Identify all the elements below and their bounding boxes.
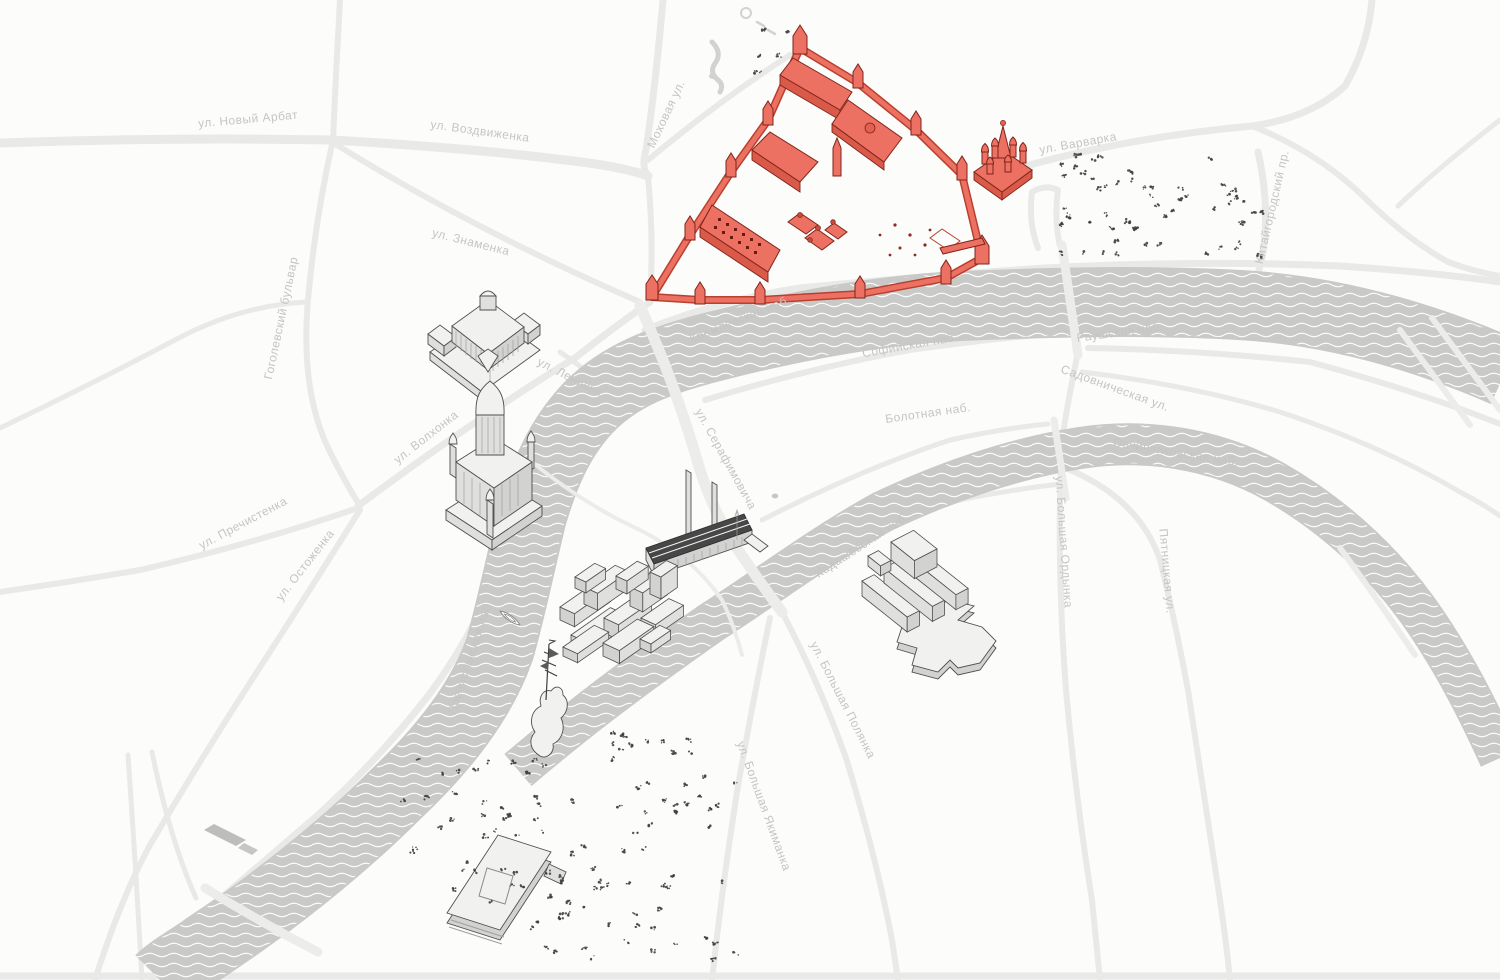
island-dot <box>772 494 778 499</box>
tree-icon <box>1230 191 1231 192</box>
tree-icon <box>482 800 484 802</box>
tree-icon <box>780 56 781 57</box>
tree-icon <box>455 887 457 889</box>
tree-icon <box>628 883 630 885</box>
tree-icon <box>647 741 650 744</box>
xxc-turret-front <box>487 500 493 538</box>
tree-icon <box>1218 249 1219 250</box>
tree-icon <box>1235 190 1238 193</box>
tree-icon <box>483 833 486 836</box>
tree-icon <box>663 885 665 887</box>
tree-icon <box>453 818 454 819</box>
tree-icon <box>611 760 614 763</box>
tree-icon <box>1227 195 1228 196</box>
river-moskva-band <box>160 302 1500 980</box>
tree-icon <box>515 871 518 874</box>
tree-icon <box>452 820 454 822</box>
tree-icon <box>509 815 511 817</box>
tree-icon <box>670 750 672 752</box>
tree-icon <box>1104 212 1106 214</box>
tree-icon <box>776 53 778 55</box>
moskva-river <box>160 302 1500 980</box>
tree-icon <box>712 960 714 962</box>
tree-icon <box>662 799 664 801</box>
tree-icon <box>1073 155 1075 157</box>
tree-icon <box>1156 244 1158 246</box>
tree-icon <box>711 958 713 960</box>
tree-icon <box>603 886 605 888</box>
tree-icon <box>412 849 414 851</box>
road-varvarka-north <box>1252 0 1372 126</box>
tree-icon <box>1137 227 1138 228</box>
tree-icon <box>1116 251 1118 253</box>
tree-icon <box>621 734 623 736</box>
tree-icon <box>489 901 492 904</box>
tree-icon <box>547 897 549 899</box>
tree-icon <box>1234 198 1235 199</box>
tree-icon <box>426 795 429 798</box>
tree-icon <box>558 876 560 878</box>
tree-icon <box>690 752 692 754</box>
tree-icon <box>1117 180 1120 183</box>
tree-icon <box>623 849 625 851</box>
tree-icon <box>622 749 624 751</box>
ges2-chimney-1 <box>686 470 691 543</box>
tree-icon <box>641 848 643 850</box>
tree-icon <box>1237 247 1239 249</box>
kremlin-garden-trees <box>879 223 932 256</box>
tree-icon <box>1152 187 1154 189</box>
tree-icon <box>458 769 461 772</box>
tree-icon <box>1116 239 1118 241</box>
tree-icon <box>645 739 647 741</box>
tree-icon <box>614 733 616 735</box>
garden-blob <box>709 73 717 79</box>
tree-icon <box>1075 156 1078 159</box>
tree-icon <box>452 887 455 890</box>
road-sivtsev <box>0 302 308 428</box>
tree-icon <box>1238 241 1240 243</box>
tree-icon <box>708 809 710 811</box>
tree-icon <box>558 916 560 918</box>
tree-icon <box>510 763 512 765</box>
tree-icon <box>530 928 532 930</box>
tree-icon <box>657 909 659 911</box>
tree-icon <box>1234 248 1236 250</box>
basils-dome-6 <box>987 157 994 174</box>
tree-icon <box>610 732 613 735</box>
house-on-embankment <box>862 530 996 679</box>
kremlin-cathedral-1 <box>788 213 818 234</box>
tree-icon <box>553 952 555 954</box>
tree-icon <box>457 772 459 774</box>
tree-icon <box>403 799 406 802</box>
road-prechistenka <box>0 508 358 592</box>
tree-icon <box>537 920 539 922</box>
tree-icon <box>1243 200 1246 203</box>
tree-icon <box>1163 216 1165 218</box>
tree-icon <box>562 917 564 919</box>
tree-icon <box>661 740 663 742</box>
tree-icon <box>560 882 563 885</box>
tree-icon <box>675 813 677 815</box>
tree-icon <box>662 739 664 741</box>
kremlin-tower-6 <box>941 260 951 284</box>
tree-icon <box>1113 227 1116 230</box>
tree-icon <box>612 741 614 743</box>
tree-icon <box>533 758 535 760</box>
tree-icon <box>1219 246 1221 248</box>
tree-icon <box>1228 203 1230 205</box>
tree-icon <box>465 862 467 864</box>
tree-icon <box>654 949 656 951</box>
tree-icon <box>423 798 425 800</box>
tree-icon <box>520 884 522 886</box>
tree-icon <box>1159 242 1161 244</box>
pashkov-house <box>428 291 540 400</box>
tree-icon <box>561 879 564 882</box>
tree-icon <box>1239 244 1240 245</box>
kremlin-tower-arsenal-corner <box>793 25 807 54</box>
tree-icon <box>1149 194 1151 196</box>
tree-icon <box>1094 159 1097 162</box>
tree-icon <box>1173 210 1174 211</box>
garden-circle <box>741 8 751 18</box>
tree-icon <box>550 896 553 899</box>
tree-icon <box>531 760 534 763</box>
tree-icon <box>621 848 622 849</box>
garden-path <box>712 42 722 92</box>
tree-icon <box>1104 186 1106 188</box>
tree-icon <box>1165 216 1168 219</box>
tree-icon <box>674 944 676 946</box>
tree-icon <box>636 832 638 834</box>
tree-icon <box>712 943 715 946</box>
tree-icon <box>1236 198 1238 200</box>
tree-icon <box>518 834 519 835</box>
tree-icon <box>1125 220 1127 222</box>
tree-icon <box>716 942 718 944</box>
tree-icon <box>537 817 539 819</box>
tree-icon <box>583 947 585 949</box>
tree-icon <box>487 762 489 764</box>
tree-icon <box>1187 194 1189 196</box>
tree-icon <box>779 53 781 55</box>
xxc-turret-left <box>450 444 456 478</box>
tree-icon <box>502 808 504 810</box>
tree-icon <box>759 72 761 74</box>
tree-icon <box>1114 253 1116 255</box>
tree-icon <box>570 855 571 856</box>
tree-icon <box>684 801 686 803</box>
tree-icon <box>515 834 517 836</box>
tree-icon <box>1102 253 1104 255</box>
tree-icon <box>527 771 528 772</box>
tree-icon <box>1182 189 1184 191</box>
tree-icon <box>721 879 724 882</box>
tree-icon <box>417 758 419 760</box>
tree-icon <box>625 736 627 738</box>
tree-icon <box>456 770 458 772</box>
tree-icon <box>663 741 665 743</box>
peter-flag <box>549 640 555 644</box>
tree-icon <box>1143 186 1145 188</box>
tree-icon <box>1080 172 1083 175</box>
tree-icon <box>616 806 618 808</box>
tree-icon <box>669 885 671 887</box>
tree-icon <box>1221 184 1223 186</box>
tree-icon <box>667 888 669 890</box>
tree-icon <box>622 851 624 853</box>
kremlin-tower-borovitskaya <box>646 275 658 300</box>
tree-icon <box>475 872 477 874</box>
tree-icon <box>666 798 667 799</box>
tree-icon <box>590 958 592 960</box>
tree-icon <box>592 867 594 869</box>
tree-icon <box>528 772 531 775</box>
tree-icon <box>1180 199 1182 201</box>
tree-icon <box>650 927 653 930</box>
tree-icon <box>1062 207 1064 209</box>
tree-icon <box>683 782 686 785</box>
road-gogolevsky-boulevard <box>306 140 360 506</box>
tree-icon <box>556 951 558 953</box>
tree-icon <box>674 752 677 755</box>
tree-icon <box>1144 186 1146 188</box>
tree-icon <box>503 819 504 820</box>
tree-icon <box>623 939 625 941</box>
tree-icon <box>1097 156 1099 158</box>
tree-icon <box>553 950 555 952</box>
tree-icon <box>1104 185 1105 186</box>
tree-icon <box>651 822 653 824</box>
tree-icon <box>596 888 598 890</box>
tree-icon <box>702 775 704 777</box>
tree-icon <box>651 949 652 950</box>
tree-icon <box>654 929 655 930</box>
tree-icon <box>513 871 516 874</box>
tree-icon <box>486 800 487 801</box>
tree-icon <box>1234 187 1237 190</box>
tree-icon <box>1230 200 1232 202</box>
tree-icon <box>1069 217 1071 219</box>
tree-icon <box>733 783 735 785</box>
tree-icon <box>453 793 455 795</box>
basils-dome-4 <box>1020 143 1027 164</box>
tree-icon <box>1146 245 1147 246</box>
tree-icon <box>715 804 718 807</box>
tree-icon <box>1240 223 1242 225</box>
tree-icon <box>547 948 549 950</box>
tree-icon <box>1114 239 1117 242</box>
tree-icon <box>450 817 453 820</box>
tree-icon <box>600 889 602 891</box>
tree-icon <box>540 805 542 807</box>
tree-icon <box>546 946 548 948</box>
tree-icon <box>633 913 635 915</box>
tree-icon <box>1143 188 1144 189</box>
small-building-1 <box>204 824 246 846</box>
tree-icon <box>632 832 634 834</box>
tree-icon <box>546 873 548 875</box>
tree-icon <box>572 799 574 801</box>
tree-icon <box>759 54 761 56</box>
tree-icon <box>602 886 604 888</box>
tree-icon <box>532 926 534 928</box>
tree-icon <box>676 803 679 806</box>
tree-icon <box>487 760 489 762</box>
tree-icon <box>1117 254 1119 256</box>
tree-icon <box>1106 216 1108 218</box>
tree-icon <box>630 744 633 747</box>
tree-icon <box>737 954 739 956</box>
tree-icon <box>505 817 507 819</box>
tree-icon <box>1243 221 1245 223</box>
tree-icon <box>536 798 538 800</box>
kremlin-tower-4 <box>853 64 863 88</box>
tree-icon <box>704 775 707 778</box>
tree-icon <box>757 71 758 72</box>
tree-icon <box>477 768 479 770</box>
kremlin-towers <box>646 25 989 304</box>
tree-icon <box>650 951 652 953</box>
tree-icon <box>493 830 495 832</box>
tree-icon <box>624 736 626 738</box>
tree-icon <box>1130 180 1132 182</box>
tree-icon <box>594 886 596 888</box>
kremlin-tower-spasskaya <box>911 111 921 135</box>
tree-icon <box>549 894 552 897</box>
tree-icon <box>593 955 594 956</box>
tree-icon <box>1154 205 1156 207</box>
tree-icon <box>600 880 602 882</box>
tree-icon <box>648 740 649 741</box>
tree-icon <box>764 27 767 30</box>
tree-icon <box>1100 155 1102 157</box>
tree-icon <box>636 787 637 788</box>
tree-icon <box>638 925 640 927</box>
tree-icon <box>1152 186 1154 188</box>
tree-icon <box>1061 166 1062 167</box>
tree-icon <box>1206 252 1208 254</box>
kremlin-tower-2 <box>726 153 736 177</box>
tree-icon <box>1152 197 1154 199</box>
tree-icon <box>628 742 630 744</box>
peter-sails <box>540 648 559 670</box>
tree-icon <box>1133 229 1135 231</box>
tree-icon <box>485 837 487 839</box>
tree-icon <box>661 742 663 744</box>
tree-icon <box>1149 186 1151 188</box>
tree-icon <box>1210 158 1213 161</box>
tree-icon <box>1083 250 1086 253</box>
tree-icon <box>467 863 468 864</box>
tree-icon <box>440 825 443 828</box>
tree-icon <box>636 914 639 917</box>
tree-icon <box>594 866 596 868</box>
tree-icon <box>722 882 724 884</box>
tree-icon <box>584 947 587 950</box>
tree-icon <box>640 785 641 786</box>
pashkov-belvedere-dome <box>480 291 496 296</box>
tree-icon <box>736 782 737 783</box>
tree-icon <box>1225 185 1227 187</box>
tree-icon <box>513 874 515 876</box>
tree-icon <box>1061 254 1063 256</box>
kremlin-tower-1 <box>685 216 695 240</box>
tree-icon <box>1242 224 1244 226</box>
tree-icon <box>412 851 414 853</box>
tree-icon <box>1144 185 1145 186</box>
tree-icon <box>659 910 660 911</box>
tree-icon <box>412 846 413 847</box>
tree-icon <box>543 832 544 833</box>
road-bolshaya-polyanka <box>782 612 898 980</box>
tree-icon <box>487 836 489 838</box>
tree-icon <box>1110 227 1112 229</box>
tree-icon <box>753 72 756 75</box>
tree-icon <box>648 783 650 785</box>
tree-icon <box>1238 221 1240 223</box>
tree-icon <box>482 836 485 839</box>
tree-icon <box>1235 195 1238 198</box>
tree-icon <box>688 739 690 741</box>
tree-icon <box>544 946 546 948</box>
tree-icon <box>440 828 442 830</box>
tree-icon <box>537 803 539 805</box>
basils-dome-3 <box>1010 137 1017 157</box>
tree-icon <box>1115 184 1116 185</box>
tree-icon <box>1128 220 1131 223</box>
tree-icon <box>637 788 640 791</box>
tree-icon <box>1062 223 1064 225</box>
tree-icon <box>452 791 453 792</box>
tree-icon <box>572 801 575 804</box>
tree-icon <box>1080 154 1081 155</box>
tree-icon <box>559 913 562 916</box>
kremlin-ivan-belltower <box>833 138 841 176</box>
tree-icon <box>1212 208 1214 210</box>
tree-icon <box>627 942 629 944</box>
tree-icon <box>664 883 666 885</box>
tree-icon <box>481 803 483 805</box>
tree-icon <box>690 741 692 743</box>
tree-icon <box>583 845 585 847</box>
tree-icon <box>664 802 665 803</box>
tree-icon <box>618 748 621 751</box>
tree-icon <box>1069 214 1070 215</box>
tree-icon <box>709 824 712 827</box>
river-waves <box>160 302 1500 980</box>
tree-icon <box>565 912 567 914</box>
tree-icon <box>1144 244 1146 246</box>
tree-icon <box>580 844 582 846</box>
tree-icon <box>545 764 547 766</box>
tree-icon <box>1131 173 1133 175</box>
kremlin-tower-5 <box>957 156 967 180</box>
tree-icon <box>513 885 515 887</box>
tree-icon <box>571 850 574 853</box>
small-building-sw <box>204 824 258 855</box>
tree-icon <box>474 769 476 771</box>
tree-icon <box>590 868 592 870</box>
tree-icon <box>646 781 648 783</box>
tree-icon <box>1163 214 1165 216</box>
pashkov-belvedere <box>480 296 496 310</box>
tree-icon <box>584 906 586 908</box>
tree-icon <box>1236 247 1238 249</box>
tree-icon <box>536 759 538 761</box>
